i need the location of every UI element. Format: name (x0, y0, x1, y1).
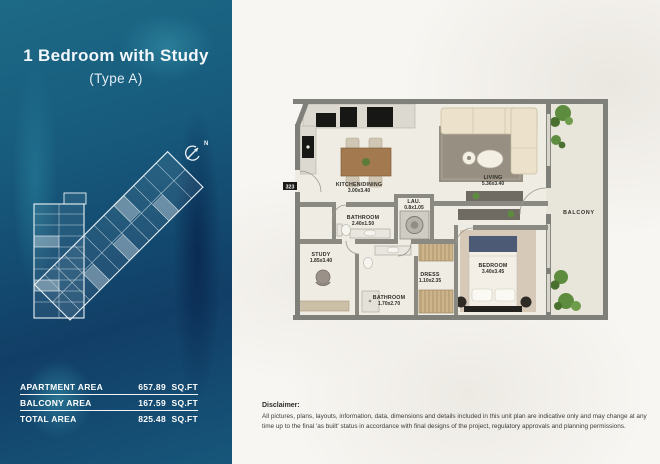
svg-text:BALCONY: BALCONY (563, 210, 595, 216)
svg-text:5.36x3.40: 5.36x3.40 (482, 181, 504, 187)
room-label-balcony: BALCONY (563, 210, 595, 216)
area-value: 167.59 (128, 398, 166, 408)
area-value: 825.48 (128, 414, 166, 424)
room-label-dress: DRESS 1.10x2.35 (419, 272, 441, 284)
disclaimer-text: All pictures, plans, layouts, informatio… (262, 412, 656, 432)
room-label-living: LIVING 5.36x3.40 (482, 175, 504, 187)
area-row-apartment: APARTMENT AREA 657.89 SQ.FT (20, 379, 198, 395)
washing-machine (400, 211, 429, 239)
sidebar: 1 Bedroom with Study (Type A) N (0, 0, 232, 464)
svg-text:2.40x1.50: 2.40x1.50 (352, 221, 374, 227)
area-label: BALCONY AREA (20, 398, 128, 408)
page-subtitle: (Type A) (0, 71, 232, 86)
unit-number: 323 (286, 184, 295, 190)
svg-text:3.00x3.40: 3.00x3.40 (348, 188, 370, 194)
area-label: TOTAL AREA (20, 414, 128, 424)
floor-plan: 323 KITCHEN/DINING 3.00x3.40 LIVING 5.36… (283, 96, 625, 346)
content-panel: 323 KITCHEN/DINING 3.00x3.40 LIVING 5.36… (232, 0, 660, 464)
area-unit: SQ.FT (166, 398, 198, 408)
disclaimer-heading: Disclaimer: (262, 402, 656, 409)
svg-text:1.85x3.40: 1.85x3.40 (310, 258, 332, 264)
north-label: N (204, 141, 208, 147)
site-key-plan: N (10, 130, 224, 334)
floor-plan-svg: 323 KITCHEN/DINING 3.00x3.40 LIVING 5.36… (283, 96, 625, 346)
area-row-total: TOTAL AREA 825.48 SQ.FT (20, 411, 198, 426)
area-label: APARTMENT AREA (20, 382, 128, 392)
tv-console (466, 191, 523, 202)
disclaimer: Disclaimer: All pictures, plans, layouts… (262, 402, 656, 432)
svg-text:1.10x2.35: 1.10x2.35 (419, 278, 441, 284)
unit-number-badge: 323 (283, 182, 297, 190)
room-label-bedroom: BEDROOM 3.40x3.45 (478, 263, 507, 275)
svg-text:3.40x3.45: 3.40x3.45 (482, 269, 504, 275)
area-unit: SQ.FT (166, 414, 198, 424)
dresser-console (458, 209, 520, 220)
area-value: 657.89 (128, 382, 166, 392)
svg-text:1.70x2.70: 1.70x2.70 (378, 301, 400, 307)
room-label-study: STUDY 1.85x3.40 (310, 252, 332, 264)
area-unit: SQ.FT (166, 382, 198, 392)
north-arrow-icon: N (186, 141, 209, 160)
page-title: 1 Bedroom with Study (0, 46, 232, 66)
area-row-balcony: BALCONY AREA 167.59 SQ.FT (20, 395, 198, 411)
svg-text:0.8x1.05: 0.8x1.05 (404, 205, 424, 211)
area-table: APARTMENT AREA 657.89 SQ.FT BALCONY AREA… (20, 379, 198, 426)
